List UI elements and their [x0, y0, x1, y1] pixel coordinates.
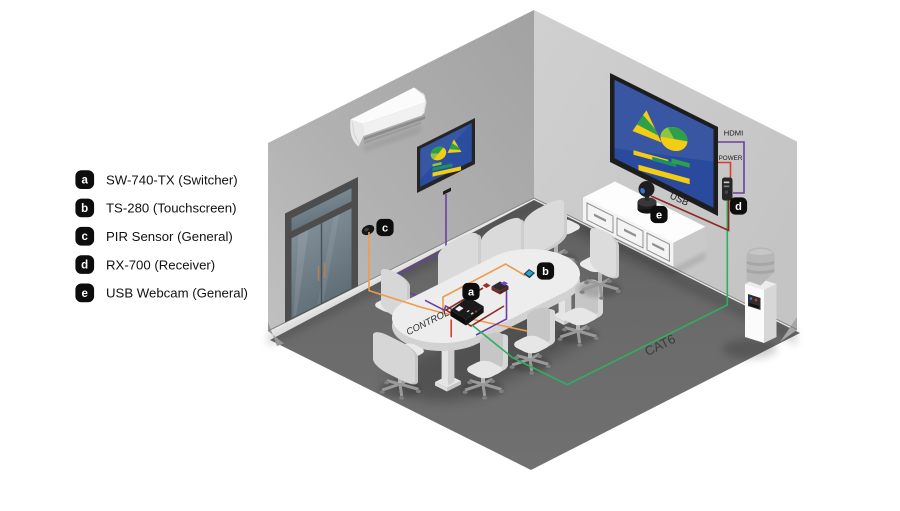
- svg-text:b: b: [81, 203, 88, 215]
- svg-text:RX-700 (Receiver): RX-700 (Receiver): [106, 257, 215, 272]
- svg-text:d: d: [81, 260, 88, 272]
- svg-text:e: e: [656, 209, 662, 221]
- svg-text:a: a: [468, 286, 475, 298]
- svg-text:SW-740-TX (Switcher): SW-740-TX (Switcher): [106, 172, 238, 187]
- svg-text:d: d: [735, 201, 742, 213]
- svg-text:PIR Sensor (General): PIR Sensor (General): [106, 229, 233, 244]
- svg-text:a: a: [81, 175, 88, 187]
- svg-text:HDMI: HDMI: [724, 129, 743, 138]
- svg-text:e: e: [81, 288, 87, 300]
- svg-text:TS-280 (Touchscreen): TS-280 (Touchscreen): [106, 201, 236, 216]
- svg-text:c: c: [81, 231, 88, 243]
- svg-text:c: c: [382, 222, 388, 234]
- svg-text:POWER: POWER: [719, 155, 743, 162]
- svg-text:USB Webcam (General): USB Webcam (General): [106, 286, 248, 301]
- svg-text:b: b: [542, 266, 549, 278]
